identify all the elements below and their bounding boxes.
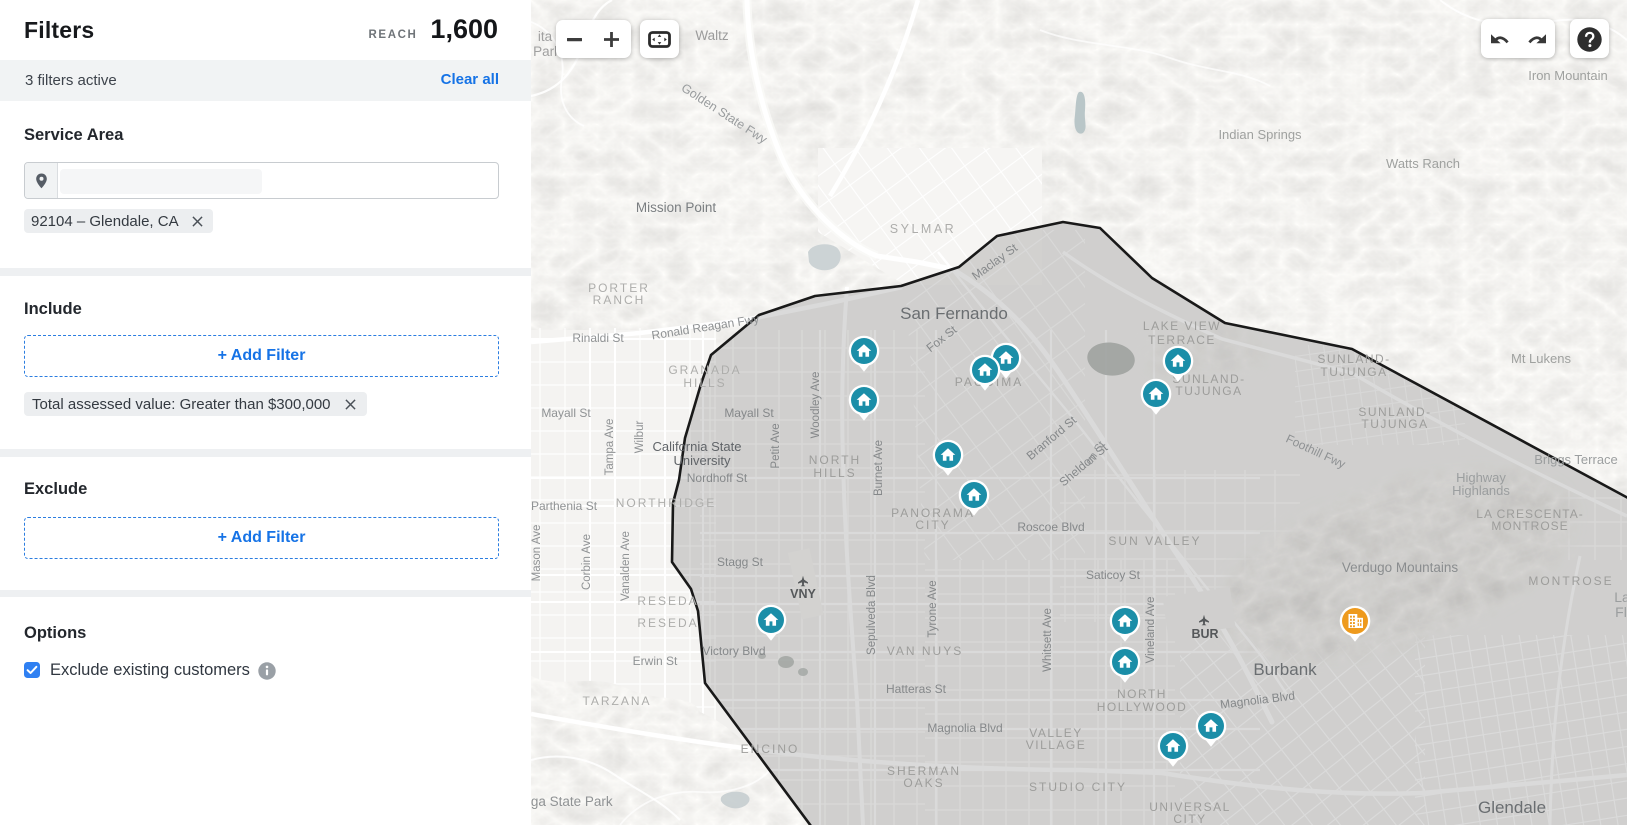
svg-text:Rinaldi St: Rinaldi St xyxy=(572,331,624,345)
svg-text:Erwin St: Erwin St xyxy=(633,654,678,668)
svg-text:Victory Blvd: Victory Blvd xyxy=(702,644,765,658)
svg-text:RANCH: RANCH xyxy=(593,293,646,307)
svg-text:Mayall St: Mayall St xyxy=(541,406,591,420)
svg-text:Sepulveda Blvd: Sepulveda Blvd xyxy=(866,575,878,655)
svg-text:ENCINO: ENCINO xyxy=(741,742,800,756)
svg-text:Tyrone Ave: Tyrone Ave xyxy=(927,580,939,637)
svg-text:Magnolia Blvd: Magnolia Blvd xyxy=(927,721,1002,735)
svg-text:Nordhoff St: Nordhoff St xyxy=(687,471,748,485)
svg-text:NORTH: NORTH xyxy=(809,453,861,467)
svg-text:Woodley Ave: Woodley Ave xyxy=(810,372,822,439)
svg-text:TUJUNGA: TUJUNGA xyxy=(1175,384,1242,398)
svg-text:GRANADA: GRANADA xyxy=(668,363,741,377)
svg-text:Briggs Terrace: Briggs Terrace xyxy=(1534,452,1618,467)
svg-text:BUR: BUR xyxy=(1191,627,1218,641)
svg-text:SUN VALLEY: SUN VALLEY xyxy=(1108,534,1201,548)
svg-text:Hatteras St: Hatteras St xyxy=(886,682,947,696)
svg-text:Roscoe Blvd: Roscoe Blvd xyxy=(1017,520,1084,534)
svg-text:Whitsett Ave: Whitsett Ave xyxy=(1042,608,1054,672)
svg-text:Corbin Ave: Corbin Ave xyxy=(581,534,593,590)
svg-text:San Fernando: San Fernando xyxy=(900,304,1008,323)
svg-text:Iron Mountain: Iron Mountain xyxy=(1528,68,1608,83)
svg-text:TARZANA: TARZANA xyxy=(582,694,651,708)
svg-text:VNY: VNY xyxy=(790,587,816,601)
svg-text:Vanalden Ave: Vanalden Ave xyxy=(620,531,632,601)
svg-text:Tampa Ave: Tampa Ave xyxy=(604,419,616,476)
svg-text:HOLLYWOOD: HOLLYWOOD xyxy=(1097,700,1188,714)
svg-text:HILLS: HILLS xyxy=(683,376,726,390)
svg-text:Mt Lukens: Mt Lukens xyxy=(1511,351,1571,366)
svg-text:NORTH: NORTH xyxy=(1117,687,1167,701)
svg-text:Verdugo Mountains: Verdugo Mountains xyxy=(1342,560,1459,575)
svg-text:nga State Park: nga State Park xyxy=(531,794,613,809)
svg-text:Burbank: Burbank xyxy=(1253,660,1317,679)
svg-text:SUNLAND-: SUNLAND- xyxy=(1317,352,1390,366)
svg-text:Watts Ranch: Watts Ranch xyxy=(1386,156,1460,171)
svg-text:MONTROSE: MONTROSE xyxy=(1491,519,1568,533)
svg-text:TERRACE: TERRACE xyxy=(1148,333,1216,347)
svg-text:ita: ita xyxy=(538,29,553,44)
svg-text:VAN NUYS: VAN NUYS xyxy=(887,644,963,658)
svg-text:SYLMAR: SYLMAR xyxy=(890,222,956,236)
svg-text:Glendale: Glendale xyxy=(1478,798,1546,817)
svg-text:Waltz: Waltz xyxy=(695,28,728,43)
svg-text:TUJUNGA: TUJUNGA xyxy=(1320,365,1387,379)
svg-text:TUJUNGA: TUJUNGA xyxy=(1361,417,1428,431)
svg-text:OAKS: OAKS xyxy=(903,776,944,790)
svg-text:Mason Ave: Mason Ave xyxy=(531,525,543,582)
svg-text:Burnet Ave: Burnet Ave xyxy=(873,440,885,496)
svg-text:Highlands: Highlands xyxy=(1452,483,1510,498)
svg-text:Petit Ave: Petit Ave xyxy=(770,423,782,468)
svg-text:STUDIO CITY: STUDIO CITY xyxy=(1029,780,1127,794)
svg-text:Mission Point: Mission Point xyxy=(636,200,717,215)
svg-text:University: University xyxy=(673,453,731,468)
svg-text:MONTROSE: MONTROSE xyxy=(1528,574,1613,588)
svg-text:VILLAGE: VILLAGE xyxy=(1026,738,1087,752)
svg-text:RESEDA: RESEDA xyxy=(637,616,698,630)
svg-text:Vineland Ave: Vineland Ave xyxy=(1145,597,1157,664)
svg-text:CITY: CITY xyxy=(915,518,950,532)
svg-text:RESEDA: RESEDA xyxy=(637,594,698,608)
svg-text:Indian Springs: Indian Springs xyxy=(1218,127,1302,142)
svg-text:Saticoy St: Saticoy St xyxy=(1086,568,1141,582)
svg-text:CITY: CITY xyxy=(1173,812,1206,825)
svg-text:HILLS: HILLS xyxy=(813,466,856,480)
svg-text:Parthenia St: Parthenia St xyxy=(531,499,598,513)
svg-text:La: La xyxy=(1614,589,1627,605)
svg-text:Mayall St: Mayall St xyxy=(724,406,774,420)
svg-text:Wilbur: Wilbur xyxy=(634,421,646,454)
svg-text:LAKE VIEW: LAKE VIEW xyxy=(1143,319,1221,333)
svg-text:California State: California State xyxy=(653,439,742,454)
svg-text:Stagg St: Stagg St xyxy=(717,555,764,569)
svg-text:Fl: Fl xyxy=(1615,604,1627,620)
svg-text:NORTHRIDGE: NORTHRIDGE xyxy=(616,496,716,510)
